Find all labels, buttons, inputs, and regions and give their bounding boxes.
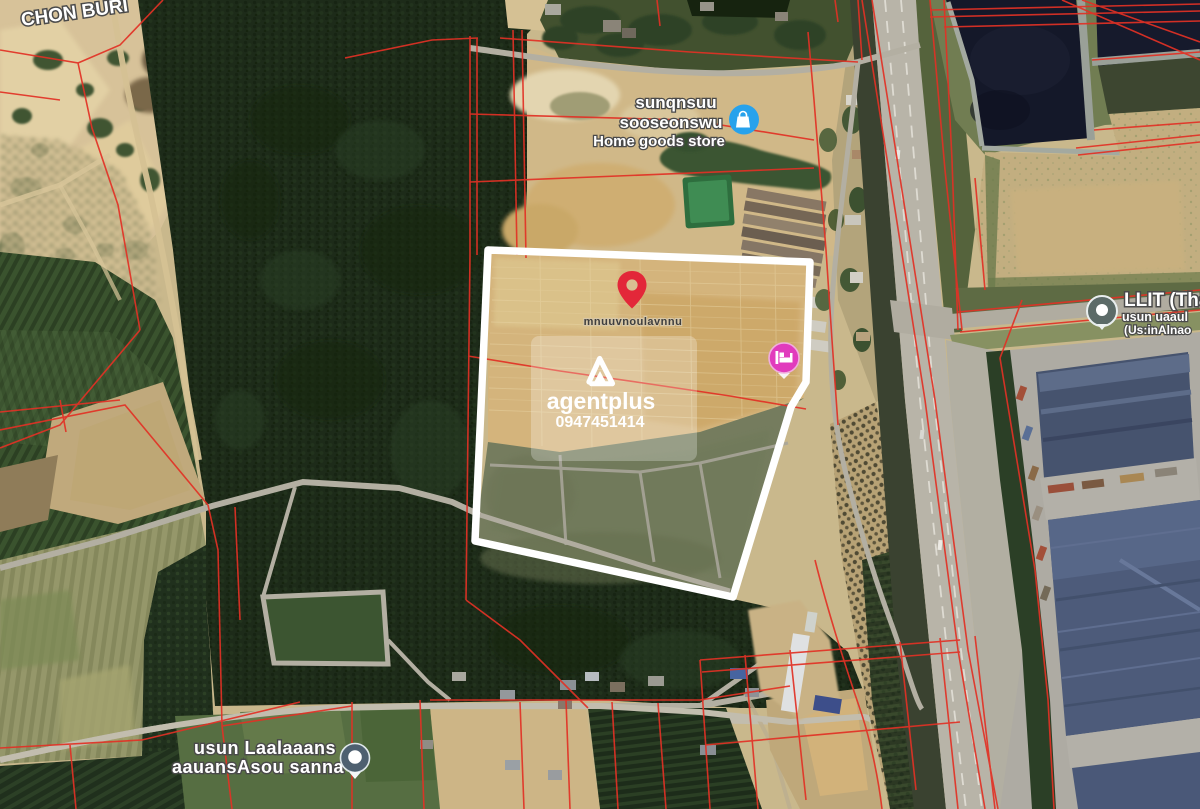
svg-text:usun uaaul: usun uaaul <box>1122 310 1188 324</box>
svg-text:aauansAsou sanna: aauansAsou sanna <box>172 757 345 777</box>
svg-text:mnuuvnoulavnnu: mnuuvnoulavnnu <box>584 316 683 328</box>
svg-text:sooseonswu: sooseonswu <box>620 113 723 132</box>
svg-text:agentplus: agentplus <box>547 388 656 414</box>
svg-text:LLIT (Tha: LLIT (Tha <box>1124 290 1200 311</box>
svg-text:0947451414: 0947451414 <box>556 414 645 431</box>
svg-text:sunqnsuu: sunqnsuu <box>635 93 716 112</box>
svg-text:Home goods store: Home goods store <box>593 133 725 150</box>
svg-text:usun Laalaaans: usun Laalaaans <box>194 738 336 758</box>
svg-text:(Us:inAlnao: (Us:inAlnao <box>1124 323 1191 337</box>
